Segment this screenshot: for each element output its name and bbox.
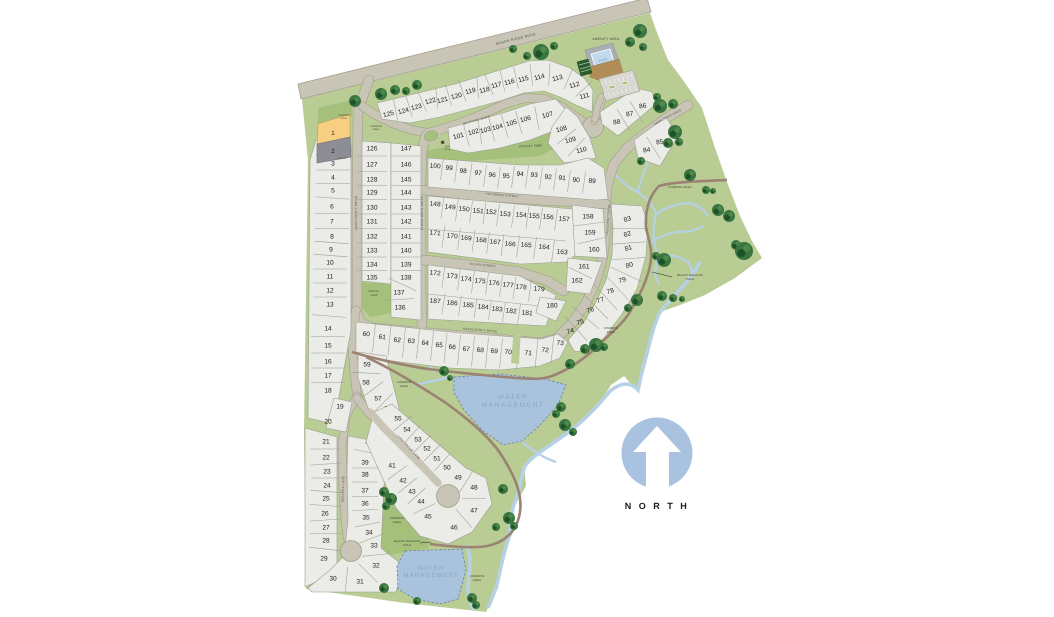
svg-text:44: 44 [417, 498, 425, 505]
svg-text:163: 163 [556, 249, 568, 257]
svg-text:100: 100 [429, 163, 441, 171]
svg-text:51: 51 [433, 455, 441, 462]
svg-text:47: 47 [470, 507, 478, 514]
svg-text:72: 72 [541, 347, 549, 355]
svg-text:184: 184 [477, 304, 489, 312]
svg-text:186: 186 [446, 300, 458, 308]
svg-text:34: 34 [365, 529, 373, 536]
svg-text:6: 6 [330, 203, 334, 210]
svg-text:159: 159 [584, 229, 595, 236]
svg-text:91: 91 [558, 175, 566, 183]
svg-text:187: 187 [429, 298, 441, 306]
svg-text:98: 98 [459, 168, 467, 176]
svg-text:ELDON WAYE DRIVE: ELDON WAYE DRIVE [420, 196, 424, 230]
svg-text:N O R T H: N O R T H [625, 501, 690, 511]
svg-text:151: 151 [472, 208, 484, 216]
svg-text:21: 21 [322, 438, 330, 445]
svg-text:181: 181 [521, 310, 533, 318]
svg-text:152: 152 [485, 209, 497, 217]
svg-text:41: 41 [388, 462, 396, 469]
svg-text:AMENITY AREA: AMENITY AREA [592, 37, 620, 41]
svg-text:22: 22 [322, 454, 330, 461]
svg-text:31: 31 [356, 578, 364, 585]
svg-text:36: 36 [361, 500, 369, 507]
svg-text:130: 130 [366, 204, 377, 211]
svg-text:64: 64 [421, 340, 429, 348]
svg-text:140: 140 [400, 247, 411, 254]
svg-text:AREA: AREA [607, 330, 615, 334]
svg-text:138: 138 [400, 274, 411, 281]
svg-text:58: 58 [362, 379, 370, 386]
svg-text:50: 50 [443, 464, 451, 471]
svg-text:127: 127 [366, 161, 377, 168]
svg-text:11: 11 [327, 273, 334, 280]
svg-text:26: 26 [321, 510, 329, 517]
svg-text:87: 87 [626, 110, 635, 118]
svg-text:145: 145 [400, 176, 411, 183]
svg-text:179: 179 [533, 286, 545, 294]
svg-text:69: 69 [490, 348, 498, 356]
svg-text:169: 169 [460, 235, 472, 243]
svg-text:162: 162 [571, 277, 582, 284]
svg-text:35: 35 [362, 514, 370, 521]
svg-text:PARK: PARK [370, 294, 377, 297]
svg-text:131: 131 [366, 218, 377, 225]
svg-text:5: 5 [331, 187, 335, 194]
svg-text:144: 144 [400, 189, 411, 196]
svg-text:166: 166 [504, 241, 516, 249]
svg-text:63: 63 [407, 338, 415, 346]
svg-text:60: 60 [362, 331, 370, 339]
svg-text:12: 12 [326, 287, 334, 294]
svg-text:126: 126 [366, 145, 377, 152]
svg-text:182: 182 [505, 308, 517, 316]
svg-text:18: 18 [324, 387, 332, 394]
svg-text:170: 170 [446, 233, 458, 241]
svg-text:178: 178 [515, 284, 527, 292]
svg-text:7: 7 [330, 218, 334, 225]
svg-text:WATER: WATER [417, 565, 444, 572]
svg-text:3: 3 [331, 160, 335, 167]
svg-text:MANAGEMENT: MANAGEMENT [403, 572, 459, 579]
svg-text:167: 167 [489, 239, 501, 247]
svg-text:136: 136 [394, 304, 405, 311]
svg-text:173: 173 [446, 273, 458, 281]
svg-text:142: 142 [400, 218, 411, 225]
svg-text:99: 99 [445, 165, 453, 173]
svg-text:137: 137 [393, 289, 404, 296]
svg-text:156: 156 [542, 214, 554, 222]
svg-text:147: 147 [400, 145, 411, 152]
svg-text:COMMON AREA: COMMON AREA [668, 185, 692, 189]
svg-text:139: 139 [400, 261, 411, 268]
svg-text:25: 25 [322, 495, 330, 502]
svg-text:158: 158 [582, 213, 593, 220]
svg-text:160: 160 [588, 246, 599, 253]
svg-text:157: 157 [558, 216, 570, 224]
svg-text:52: 52 [423, 445, 431, 452]
svg-text:AREA: AREA [393, 520, 401, 524]
svg-text:42: 42 [399, 477, 407, 484]
svg-text:TRAIL: TRAIL [686, 277, 695, 281]
svg-text:175: 175 [474, 278, 486, 286]
svg-text:45: 45 [424, 513, 432, 520]
svg-text:55: 55 [394, 415, 402, 422]
svg-text:154: 154 [515, 212, 527, 220]
svg-text:141: 141 [400, 233, 411, 240]
svg-text:94: 94 [516, 171, 524, 179]
svg-text:10: 10 [326, 259, 334, 266]
svg-text:1: 1 [331, 130, 335, 137]
svg-text:33: 33 [370, 542, 378, 549]
svg-text:AREA: AREA [473, 578, 481, 582]
svg-text:148: 148 [429, 201, 441, 209]
svg-text:93: 93 [530, 172, 538, 180]
svg-text:134: 134 [366, 261, 377, 268]
svg-text:180: 180 [546, 302, 557, 309]
svg-text:57: 57 [374, 395, 382, 402]
svg-text:165: 165 [520, 242, 532, 250]
svg-text:129: 129 [366, 189, 377, 196]
svg-text:28: 28 [322, 537, 330, 544]
svg-text:65: 65 [435, 342, 443, 350]
svg-text:153: 153 [499, 211, 511, 219]
svg-text:24: 24 [323, 482, 331, 489]
svg-text:66: 66 [448, 344, 456, 352]
svg-text:185: 185 [462, 302, 474, 310]
svg-text:48: 48 [470, 484, 478, 491]
svg-text:132: 132 [366, 233, 377, 240]
svg-text:149: 149 [444, 204, 456, 212]
svg-text:146: 146 [400, 161, 411, 168]
svg-text:39: 39 [361, 459, 369, 466]
svg-text:PARKING: PARKING [338, 157, 347, 160]
svg-text:43: 43 [408, 488, 416, 495]
svg-text:WATER: WATER [498, 394, 529, 401]
svg-text:183: 183 [491, 306, 503, 314]
svg-text:49: 49 [454, 474, 462, 481]
svg-text:97: 97 [474, 170, 482, 178]
svg-text:9: 9 [329, 246, 333, 253]
svg-text:90: 90 [572, 177, 580, 185]
svg-text:133: 133 [366, 247, 377, 254]
svg-text:AREA: AREA [373, 128, 380, 131]
svg-text:177: 177 [502, 282, 514, 290]
svg-text:84: 84 [643, 146, 652, 154]
svg-text:86: 86 [639, 102, 648, 110]
svg-text:17: 17 [324, 372, 332, 379]
svg-text:53: 53 [414, 436, 422, 443]
svg-text:46: 46 [450, 524, 458, 531]
svg-text:HAZELCROFT DRIVE: HAZELCROFT DRIVE [354, 196, 358, 231]
svg-text:POCKET: POCKET [368, 290, 380, 293]
svg-text:32: 32 [372, 562, 380, 569]
svg-text:67: 67 [462, 346, 470, 354]
svg-text:150: 150 [458, 206, 470, 214]
svg-text:161: 161 [578, 263, 589, 270]
svg-text:27: 27 [322, 524, 330, 531]
svg-text:155: 155 [528, 213, 540, 221]
svg-text:70: 70 [504, 349, 512, 357]
svg-text:30: 30 [329, 575, 337, 582]
svg-text:62: 62 [393, 337, 401, 345]
svg-text:143: 143 [400, 204, 411, 211]
svg-text:29: 29 [320, 555, 328, 562]
svg-text:TRAIL: TRAIL [403, 543, 412, 547]
svg-text:88: 88 [613, 118, 622, 126]
svg-text:71: 71 [524, 350, 532, 358]
svg-text:168: 168 [475, 237, 487, 245]
svg-text:4: 4 [331, 174, 335, 181]
svg-text:176: 176 [488, 280, 500, 288]
svg-text:128: 128 [366, 176, 377, 183]
svg-text:AREA: AREA [341, 117, 348, 120]
svg-text:92: 92 [544, 174, 552, 182]
svg-text:73: 73 [556, 340, 564, 348]
svg-text:172: 172 [429, 270, 441, 278]
svg-text:MANAGEMENT: MANAGEMENT [482, 402, 545, 409]
svg-text:20: 20 [324, 418, 332, 425]
svg-text:164: 164 [538, 244, 550, 252]
svg-text:68: 68 [476, 347, 484, 355]
svg-text:19: 19 [336, 403, 344, 410]
svg-text:15: 15 [324, 342, 332, 349]
svg-text:23: 23 [323, 468, 331, 475]
svg-text:16: 16 [324, 358, 332, 365]
svg-text:174: 174 [460, 276, 472, 284]
svg-text:38: 38 [361, 471, 369, 478]
svg-text:59: 59 [363, 361, 371, 368]
svg-text:171: 171 [429, 230, 441, 238]
svg-text:54: 54 [403, 426, 411, 433]
svg-text:85: 85 [656, 138, 665, 146]
svg-text:61: 61 [378, 334, 386, 342]
svg-text:96: 96 [488, 172, 496, 180]
svg-text:95: 95 [502, 173, 510, 181]
svg-text:37: 37 [361, 487, 369, 494]
svg-text:AREA: AREA [400, 384, 408, 388]
svg-text:8: 8 [330, 233, 334, 240]
svg-text:135: 135 [366, 274, 377, 281]
svg-text:89: 89 [588, 178, 596, 186]
svg-text:14: 14 [324, 325, 332, 332]
svg-text:13: 13 [326, 301, 334, 308]
svg-text:2: 2 [331, 148, 335, 155]
